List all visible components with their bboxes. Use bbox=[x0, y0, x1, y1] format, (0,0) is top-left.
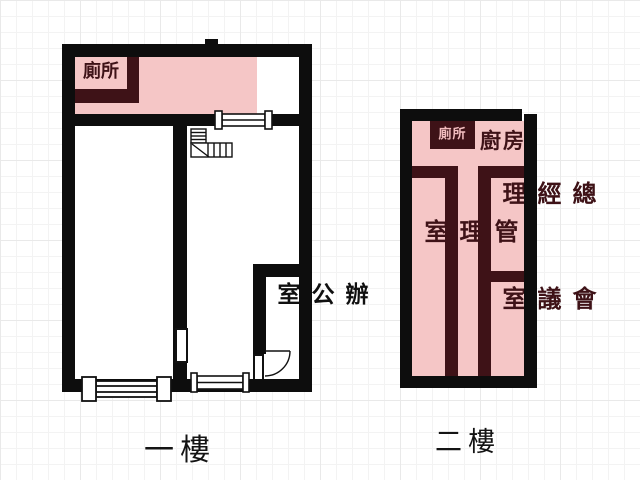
floor1-outer-wall-bottom bbox=[62, 379, 312, 392]
floor1-outer-wall-top bbox=[62, 44, 312, 57]
floor1-central-wall-opening bbox=[175, 328, 188, 363]
floor2-outer-wall-top bbox=[400, 109, 522, 121]
floor2-management-label: 管理室 bbox=[416, 219, 521, 248]
floor1-outer-wall-right bbox=[299, 44, 312, 392]
floor2-caption: 二樓 bbox=[428, 420, 508, 459]
floor2-general-manager-label: 總經理 bbox=[494, 181, 599, 210]
floor1-office-label: 辦公室 bbox=[270, 282, 372, 308]
floor2-interior bbox=[412, 121, 524, 376]
floorplan-canvas: 廁所 辦公室 廁所 廚房 管理室 總經理 會議 bbox=[0, 0, 640, 480]
floor1-office-wall-left bbox=[253, 264, 266, 354]
floor2-meeting-label: 會議室 bbox=[494, 286, 599, 314]
floor1-mid-wall bbox=[62, 114, 312, 126]
floor2-outer-wall-bottom bbox=[400, 376, 537, 388]
floor1-caption: 一樓 bbox=[138, 425, 222, 469]
floor1-outer-wall-left bbox=[62, 44, 75, 392]
floor2-outer-wall-left bbox=[400, 109, 412, 388]
floor1-toilet-wall-bottom bbox=[75, 89, 139, 103]
floor2-outer-wall-right bbox=[524, 114, 537, 388]
floor2-toilet-label: 廁所 bbox=[430, 121, 475, 142]
floor2-toilet-block: 廁所 bbox=[430, 121, 475, 149]
floor2-room-separator-wall bbox=[478, 271, 524, 282]
floor2-central-wall bbox=[445, 166, 458, 376]
floor2-kitchen-label: 廚房 bbox=[478, 131, 528, 153]
floor1-toilet-label: 廁所 bbox=[75, 62, 127, 81]
